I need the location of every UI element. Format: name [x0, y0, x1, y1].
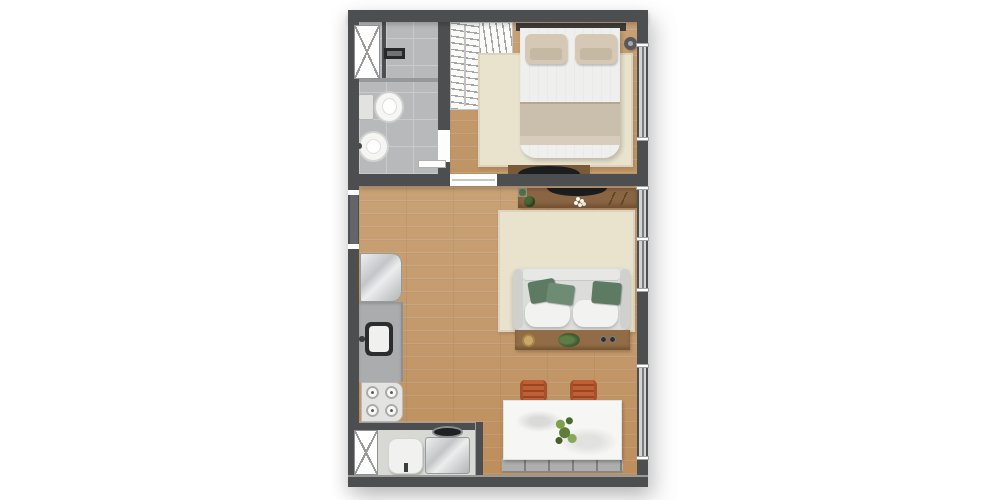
- divider-wall: [359, 174, 637, 186]
- console-plant: [558, 333, 580, 347]
- toilet-seat: [382, 98, 397, 115]
- sofa-seat-front: [523, 269, 620, 281]
- cooktop: [361, 382, 403, 422]
- pillow-fold: [530, 48, 562, 60]
- heater-valve: [404, 463, 408, 472]
- washbasin: [358, 131, 389, 162]
- wardrobe-top-bar: [479, 22, 513, 56]
- shower-drain: [384, 48, 405, 59]
- living-window1-sill-bottom: [636, 288, 649, 292]
- bed-pillow-left: [525, 34, 567, 64]
- dining-chair-1: [520, 380, 547, 402]
- sink-basin: [369, 326, 389, 352]
- washer-lid: [432, 426, 463, 438]
- coaster-2: [609, 336, 616, 343]
- green-pillow-3: [591, 281, 622, 305]
- bed-pillow-right: [575, 34, 617, 64]
- dining-bench: [502, 458, 623, 473]
- plant-pot-large: [524, 196, 535, 207]
- living-window2-sill-top: [636, 364, 649, 368]
- bathroom-window: [354, 25, 380, 79]
- console-table: [515, 330, 630, 350]
- gold-tray: [522, 334, 535, 347]
- bathroom-door-opening: [438, 130, 450, 162]
- basin-bowl: [366, 139, 381, 154]
- plant-leaves: [519, 189, 526, 196]
- bathroom-door-leaf: [418, 160, 446, 168]
- kitchen-sink: [365, 322, 393, 356]
- burner-2: [385, 386, 398, 399]
- burner-3: [366, 404, 379, 417]
- washing-machine: [425, 437, 470, 474]
- door-leaf-line: [452, 179, 495, 181]
- white-flower-decor: [576, 197, 580, 201]
- burner-1: [366, 386, 379, 399]
- toilet-tank: [358, 94, 374, 120]
- sink-faucet: [359, 336, 365, 342]
- coaster-1: [600, 336, 607, 343]
- burner-4: [385, 404, 398, 417]
- green-pillow-2: [546, 282, 576, 306]
- living-window1-sill-top: [636, 186, 649, 190]
- service-wall-right: [475, 422, 483, 475]
- marble-dining-table: [503, 400, 622, 460]
- service-wall-top: [359, 422, 483, 430]
- outer-wall-bottom: [348, 475, 648, 487]
- entry-door-jamb-bottom: [348, 244, 359, 249]
- bedroom-door-opening: [450, 174, 497, 186]
- bedroom-window-sill-bottom: [636, 137, 649, 141]
- living-window2-sill-bottom: [636, 456, 649, 460]
- sofa-arm-right: [620, 269, 630, 329]
- wardrobe-rail: [464, 26, 466, 106]
- toilet-bowl: [374, 91, 404, 123]
- bed-blanket-fold: [520, 136, 620, 145]
- dining-chair-2: [570, 380, 597, 402]
- service-window: [354, 430, 378, 475]
- plant-pot-small: [518, 188, 527, 197]
- floor-plan-canvas: [0, 0, 1000, 500]
- bedroom-window-mullion: [642, 47, 644, 137]
- pillow-fold: [580, 48, 612, 60]
- outer-wall-top: [348, 10, 648, 22]
- living-window1-sill-mid: [636, 237, 649, 241]
- living-window2-mullion: [642, 368, 644, 456]
- wood-grain-marks: [606, 192, 630, 205]
- apartment-floor-plan: [348, 10, 648, 487]
- bedroom-window-sill-top: [636, 43, 649, 47]
- drain-grate: [387, 51, 402, 56]
- plant-centerpiece: [552, 414, 580, 448]
- water-heater: [388, 438, 423, 474]
- refrigerator: [360, 253, 402, 302]
- lamp-shade-center: [628, 41, 633, 46]
- bed-blanket: [520, 102, 620, 136]
- sofa-arm-left: [513, 269, 523, 329]
- sofa: [513, 268, 630, 330]
- entry-door-leaf: [350, 195, 358, 244]
